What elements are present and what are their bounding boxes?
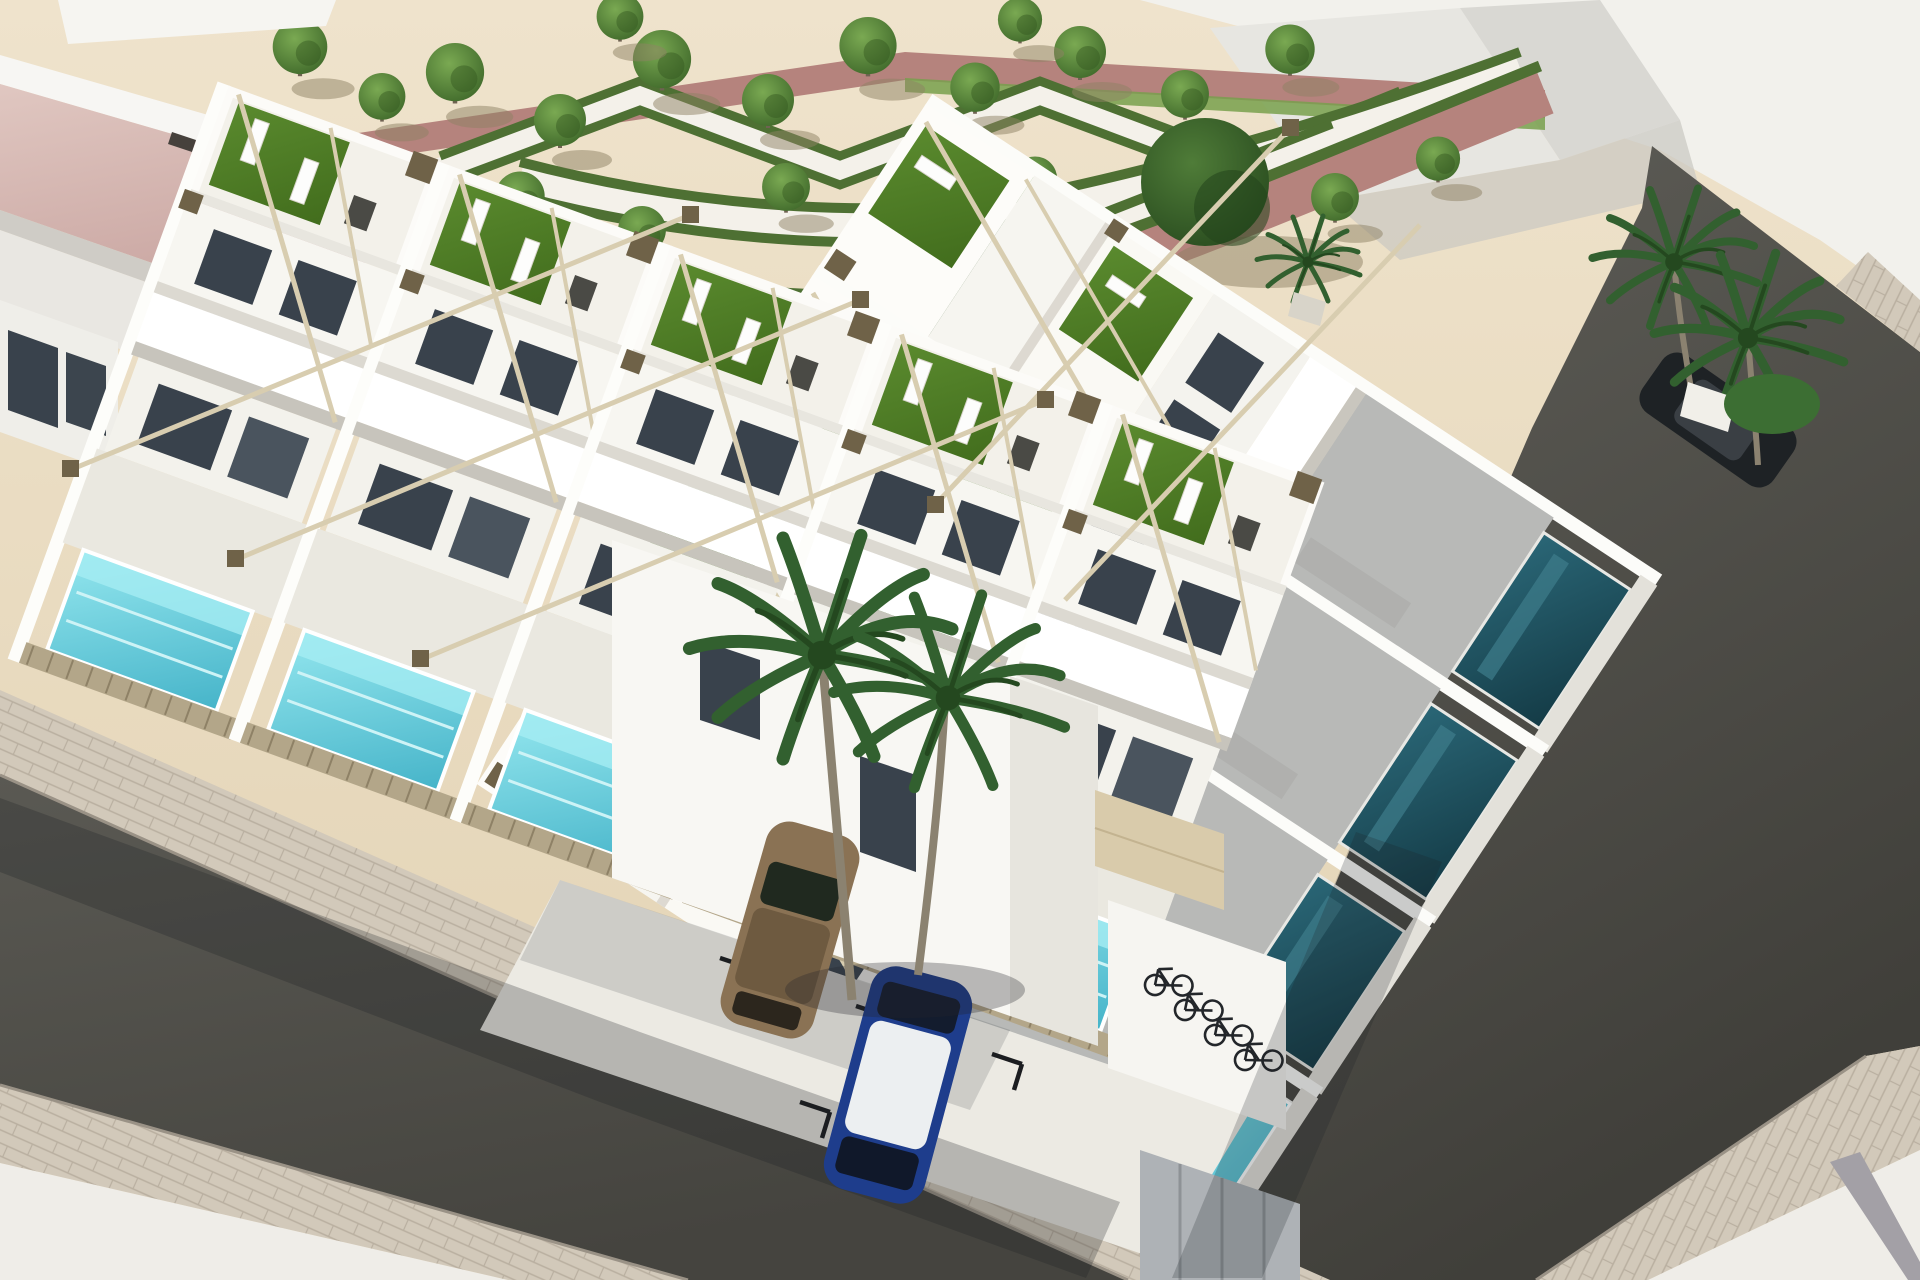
entry-door: [860, 756, 916, 872]
shrub: [1724, 374, 1820, 434]
palm-shadow: [785, 962, 1025, 1018]
render-figure: Aerial architectural rendering of a mode…: [0, 0, 1920, 1280]
screenshot-root: Aerial architectural rendering of a mode…: [0, 0, 1920, 1280]
aerial-render: [0, 0, 1920, 1280]
